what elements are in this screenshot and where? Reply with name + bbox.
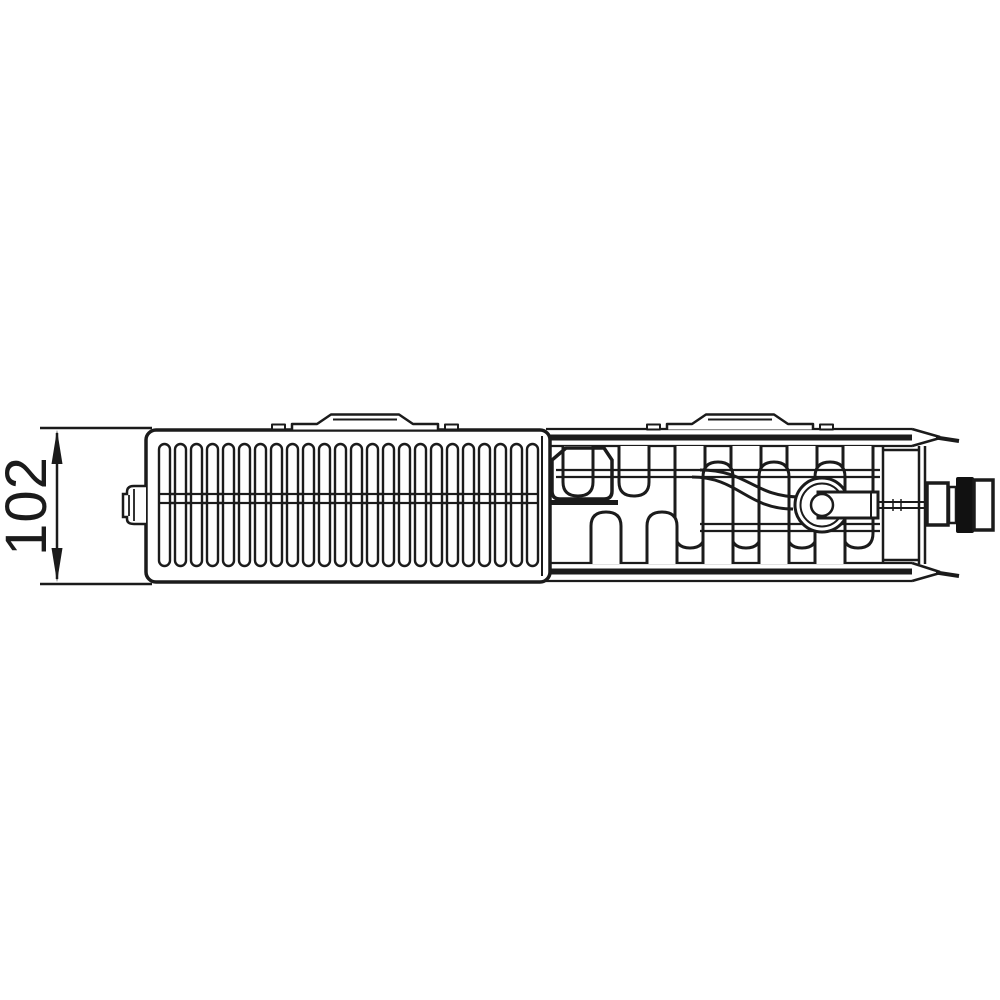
convector-fin: [287, 444, 298, 566]
valve-bore: [811, 494, 833, 516]
valve-body: [927, 483, 948, 525]
water-channel: [591, 512, 621, 564]
convector-fin: [463, 444, 474, 566]
rear-panel-bottom-edge: [546, 563, 912, 581]
valve-collar: [949, 487, 956, 523]
convector-fin: [415, 444, 426, 566]
convector-fin: [495, 444, 506, 566]
convector-fin: [511, 444, 522, 566]
convector-fin: [431, 444, 442, 566]
convector-fin: [335, 444, 346, 566]
convector-fin: [207, 444, 218, 566]
convector-fin: [303, 444, 314, 566]
air-vent-plug: [123, 486, 146, 524]
convector-fin: [479, 444, 490, 566]
convector-fin: [399, 444, 410, 566]
front-panel: [146, 430, 550, 582]
valve-union-nut: [956, 477, 974, 533]
rear-panel-top-edge: [546, 429, 912, 446]
water-channel: [675, 446, 705, 548]
radiator-section-drawing: 102: [0, 0, 1000, 1000]
convector-fin: [223, 444, 234, 566]
valve-assembly: [927, 477, 993, 533]
panel-break-tip-top: [912, 429, 959, 446]
convector-fin: [239, 444, 250, 566]
convector-fin: [271, 444, 282, 566]
grille-tab-left: [272, 415, 458, 430]
convector-fin: [447, 444, 458, 566]
convector-fin: [367, 444, 378, 566]
dimension-label: 102: [0, 456, 59, 556]
convector-fin: [383, 444, 394, 566]
convector-fin: [159, 444, 170, 566]
convector-fin: [527, 444, 538, 566]
convector-fin: [175, 444, 186, 566]
water-channel: [731, 446, 761, 548]
rear-panel-end-plate: [883, 446, 925, 564]
convector-fin: [319, 444, 330, 566]
grille-tab-right: [647, 415, 833, 430]
valve-cap: [974, 480, 993, 530]
convector-fin: [351, 444, 362, 566]
convector-fin: [191, 444, 202, 566]
panel-break-tip-bottom: [912, 563, 959, 581]
rear-panel-section: [546, 429, 959, 581]
water-channel: [647, 512, 677, 564]
convector-fin: [255, 444, 266, 566]
radiator-technical-drawing-page: 102: [0, 0, 1000, 1000]
